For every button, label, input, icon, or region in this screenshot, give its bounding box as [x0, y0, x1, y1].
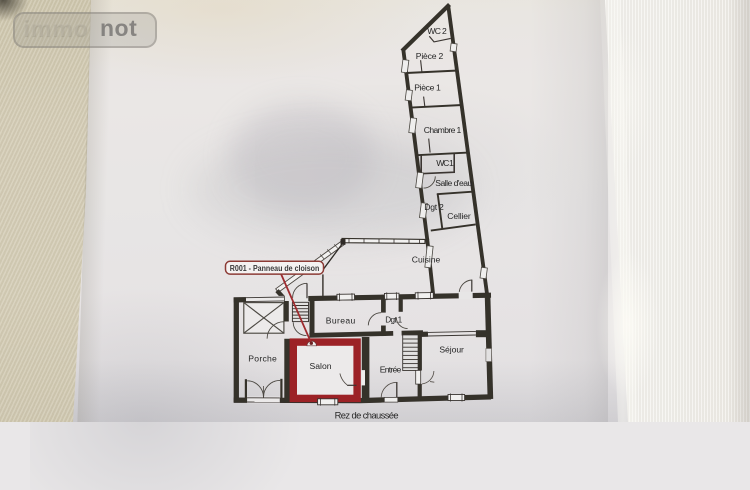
svg-text:Pièce 1: Pièce 1 — [414, 83, 441, 93]
svg-text:Dgt 2: Dgt 2 — [424, 202, 444, 212]
svg-text:Dgt 1: Dgt 1 — [385, 315, 402, 324]
svg-text:R001 - Panneau de cloison: R001 - Panneau de cloison — [230, 264, 320, 273]
svg-text:Salon: Salon — [310, 361, 332, 371]
svg-text:Cuisine: Cuisine — [412, 255, 441, 265]
svg-text:Rez de chaussée: Rez de chaussée — [335, 410, 399, 421]
svg-text:Chambre 1: Chambre 1 — [424, 125, 462, 135]
svg-text:Séjour: Séjour — [439, 345, 464, 355]
svg-text:Entrée: Entrée — [380, 365, 402, 375]
svg-text:Pièce 2: Pièce 2 — [416, 51, 444, 61]
svg-text:Cellier: Cellier — [447, 211, 471, 221]
svg-text:WC 2: WC 2 — [427, 26, 447, 36]
svg-text:Salle d'eau: Salle d'eau — [435, 178, 472, 188]
svg-text:Bureau: Bureau — [326, 316, 356, 326]
svg-text:WC 1: WC 1 — [436, 158, 454, 168]
svg-text:Porche: Porche — [248, 354, 277, 364]
